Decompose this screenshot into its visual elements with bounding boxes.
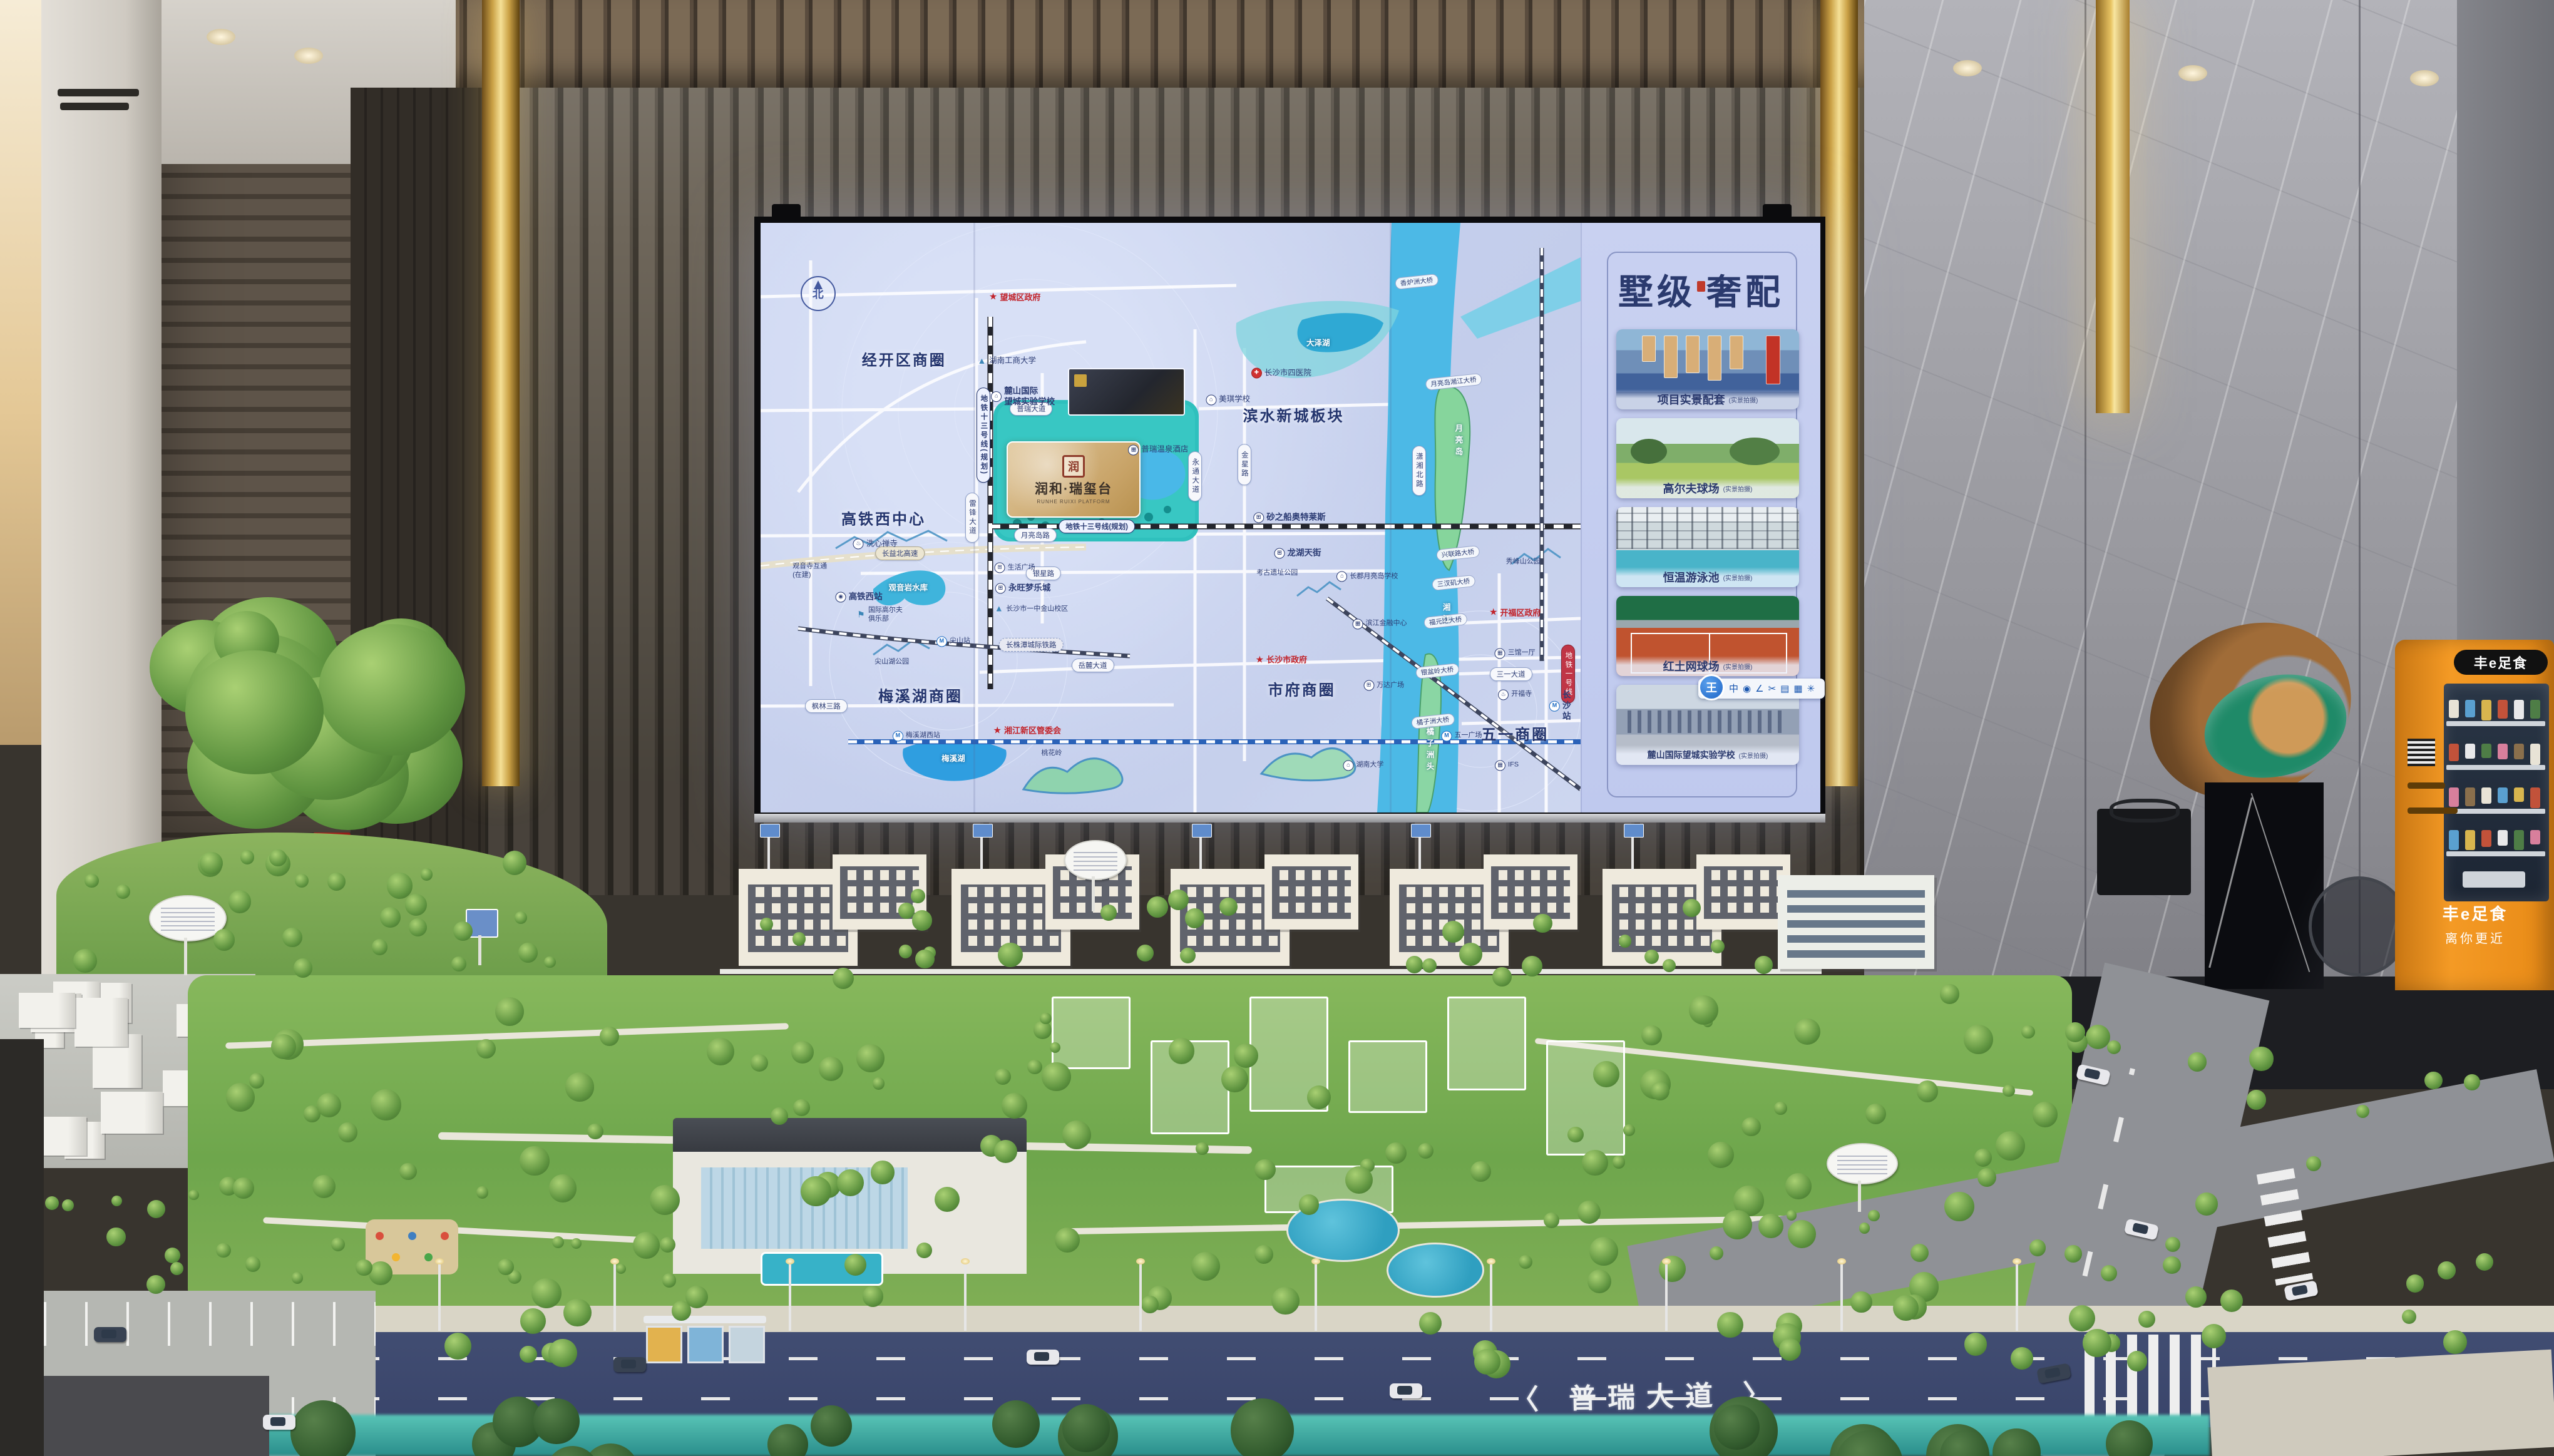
model-tree bbox=[911, 889, 925, 903]
map-poi-label: 观音岩水库 bbox=[889, 583, 928, 593]
lot-sign-post bbox=[1199, 834, 1202, 870]
model-tree bbox=[1442, 921, 1464, 943]
model-tree bbox=[2083, 1329, 2111, 1357]
sign-board bbox=[1642, 336, 1656, 362]
street-lamp bbox=[1665, 1263, 1668, 1331]
model-tree bbox=[294, 958, 313, 978]
model-tree bbox=[2188, 1052, 2207, 1071]
building-icon: ▦ bbox=[1353, 618, 1363, 629]
cart-icon: ⊞ bbox=[1274, 548, 1285, 558]
ceiling-spotlight bbox=[207, 29, 235, 45]
star-icon: ★ bbox=[989, 291, 997, 302]
model-perimeter-wall bbox=[720, 969, 1822, 974]
poi-text: 大泽湖 bbox=[1306, 339, 1330, 349]
gold-light-column bbox=[2096, 0, 2130, 413]
caption-text: 恒温游泳池 bbox=[1663, 569, 1720, 585]
map-road-label: 永通大道 bbox=[1188, 451, 1202, 501]
map-poi-label: 湘江 bbox=[1440, 603, 1450, 627]
poi-text: 梅溪湖 bbox=[941, 754, 965, 764]
model-tree bbox=[111, 1196, 122, 1206]
model-tree bbox=[409, 918, 427, 936]
model-tree bbox=[792, 932, 806, 945]
model-tree bbox=[1271, 1287, 1299, 1315]
amenity-card-golf: 高尔夫球场(实景拍摄) bbox=[1616, 418, 1799, 498]
map-road-label: 月亮岛路 bbox=[1014, 528, 1057, 542]
screen-bottom-bezel bbox=[754, 814, 1825, 823]
map-area-label: 五一商圈 bbox=[1481, 722, 1549, 744]
model-tree bbox=[331, 1238, 345, 1251]
poi-text: 长沙市一中金山校区 bbox=[1006, 605, 1068, 613]
model-tree bbox=[2003, 1085, 2014, 1097]
model-tree bbox=[1865, 1104, 1886, 1124]
model-tree bbox=[1582, 1150, 1608, 1176]
model-tree bbox=[73, 949, 97, 973]
product-item bbox=[2465, 744, 2475, 759]
model-tree bbox=[1714, 1405, 1760, 1450]
model-tree bbox=[327, 873, 346, 891]
model-tree bbox=[549, 1174, 577, 1202]
black-bag bbox=[2097, 809, 2191, 895]
model-plaque-sign bbox=[1827, 1143, 1898, 1184]
lot-number-sign bbox=[1624, 824, 1644, 838]
model-tree bbox=[1651, 1082, 1669, 1100]
model-tree bbox=[863, 1286, 883, 1306]
model-tree bbox=[791, 1041, 814, 1064]
model-tree bbox=[170, 1262, 183, 1275]
sign-board bbox=[1730, 336, 1743, 369]
poi-text: 长沙市四医院 bbox=[1264, 368, 1311, 378]
marble-seam bbox=[2359, 0, 2361, 995]
model-tree bbox=[476, 1039, 496, 1059]
model-tree bbox=[515, 911, 527, 924]
map-road-label: 三一大道 bbox=[1490, 667, 1532, 681]
project-name-en: RUNHE RUIXI PLATFORM bbox=[1037, 499, 1110, 505]
screen-bracket bbox=[772, 204, 801, 220]
model-tree bbox=[1641, 1025, 1662, 1046]
laser-icon[interactable]: ◉ bbox=[1743, 684, 1751, 694]
model-tree bbox=[998, 943, 1022, 967]
model-tree bbox=[1774, 1102, 1787, 1115]
model-tree bbox=[1755, 956, 1773, 974]
vending-shelf bbox=[2446, 721, 2545, 726]
star-icon: ★ bbox=[1489, 607, 1497, 618]
street-lamp bbox=[438, 1263, 441, 1331]
map-landmark-label: ★开福区政府 bbox=[1489, 606, 1541, 618]
caption-text: 高尔夫球场 bbox=[1663, 480, 1720, 496]
cart-icon: ⊞ bbox=[995, 583, 1006, 594]
model-tree bbox=[2202, 1324, 2226, 1348]
model-tree bbox=[1100, 905, 1117, 921]
model-tree bbox=[1788, 1220, 1816, 1248]
map-landmark-label: ★长沙市政府 bbox=[1256, 654, 1307, 665]
left-floor-shadow bbox=[0, 1039, 44, 1456]
model-tree bbox=[2402, 1310, 2416, 1324]
caption-sub: (实景拍摄) bbox=[1723, 484, 1753, 493]
model-tree bbox=[269, 849, 286, 866]
model-tree bbox=[1185, 908, 1205, 928]
model-tree bbox=[1147, 896, 1168, 918]
map-poi-label: 月亮岛 bbox=[1453, 424, 1463, 459]
vending-brand-pill: 丰e足食 bbox=[2454, 650, 2548, 675]
cart-icon: ⊞ bbox=[1363, 680, 1374, 691]
caption-sub: (实景拍摄) bbox=[1723, 662, 1753, 671]
model-tree bbox=[916, 1243, 932, 1258]
red-seal bbox=[1697, 281, 1705, 292]
map-road-label: 金星路 bbox=[1238, 444, 1251, 485]
model-villa bbox=[1484, 854, 1577, 930]
model-tree bbox=[1723, 1210, 1752, 1239]
model-tree bbox=[1033, 1021, 1051, 1038]
model-tree bbox=[2306, 1156, 2321, 1171]
map-poi-label: 秀峰山公园 bbox=[1506, 558, 1541, 567]
model-tree bbox=[1619, 935, 1631, 947]
sign-post bbox=[184, 938, 187, 975]
vending-slogan: 离你更近 bbox=[2401, 928, 2549, 946]
model-pergola bbox=[1546, 1040, 1625, 1156]
product-item bbox=[2498, 744, 2508, 759]
model-tree bbox=[793, 1099, 810, 1116]
project-parcel: 润 润和·瑞玺台 RUNHE RUIXI PLATFORM bbox=[1007, 441, 1141, 518]
map-poi-label: ⌂美琪学校 bbox=[1206, 394, 1250, 405]
map-poi-label: ▦滨江金融中心 bbox=[1353, 618, 1407, 629]
building-icon: ▦ bbox=[1495, 648, 1505, 659]
lot-sign-post bbox=[1631, 834, 1634, 870]
model-tree bbox=[1191, 1252, 1220, 1281]
map-poi-label: 尖山湖公园 bbox=[874, 658, 909, 667]
model-tree bbox=[1717, 1312, 1743, 1338]
map-road-label: 潇湘北路 bbox=[1412, 446, 1426, 496]
model-plaque-sign bbox=[1064, 840, 1127, 880]
map-area-label: 高铁西中心 bbox=[841, 507, 926, 529]
poi-text: IFS bbox=[1508, 761, 1519, 770]
metro-icon: M bbox=[1442, 731, 1452, 741]
ceiling-spotlight bbox=[1953, 60, 1982, 76]
ceiling-spotlight bbox=[2178, 65, 2207, 81]
gold-column-right bbox=[1820, 0, 1858, 786]
poi-text: 滨江金融中心 bbox=[1366, 620, 1407, 628]
hospital-icon: ✚ bbox=[1251, 368, 1262, 379]
model-tree bbox=[1522, 956, 1542, 977]
model-tree bbox=[2247, 1090, 2266, 1109]
playground-equipment bbox=[424, 1253, 433, 1261]
model-pergola bbox=[1447, 997, 1526, 1090]
map-road-label: 岳麓大道 bbox=[1072, 659, 1114, 672]
map-poi-label: M五一广场 bbox=[1442, 731, 1482, 741]
model-tree bbox=[801, 1176, 831, 1206]
gold-column-left bbox=[482, 0, 520, 786]
model-tree bbox=[1027, 1060, 1042, 1074]
sign-board bbox=[1664, 336, 1678, 378]
ceiling-spotlight bbox=[2410, 70, 2439, 86]
pen-icon[interactable]: ∠ bbox=[1755, 684, 1763, 694]
ceiling-spotlight bbox=[294, 48, 323, 64]
caption-text: 项目实景配套 bbox=[1658, 391, 1725, 408]
map-poi-label: 大泽湖 bbox=[1306, 339, 1330, 349]
model-tree bbox=[1254, 1159, 1275, 1180]
model-tree bbox=[2163, 1256, 2180, 1274]
black-marble-pedestal bbox=[2205, 782, 2324, 989]
mountain-icon: ▲ bbox=[977, 357, 987, 366]
map-poi-label: ⌂长郡月亮岛学校 bbox=[1336, 572, 1398, 582]
model-tree bbox=[1964, 1025, 1993, 1054]
product-item bbox=[2449, 787, 2459, 807]
scissors-icon[interactable]: ✂ bbox=[1768, 684, 1777, 694]
model-tree bbox=[662, 1273, 676, 1287]
sales-gallery-photo: 丰e足食 丰e足食 离你更近 bbox=[0, 0, 2554, 1456]
model-tree bbox=[2249, 1047, 2273, 1070]
model-tree bbox=[1474, 1349, 1500, 1375]
model-tree bbox=[399, 1163, 417, 1181]
product-item bbox=[2481, 830, 2491, 847]
map-landmark-label: ★湘江新区管委会 bbox=[993, 724, 1061, 736]
model-tree bbox=[873, 1077, 885, 1089]
school-icon: ⌂ bbox=[1336, 572, 1347, 582]
model-tree bbox=[495, 997, 524, 1026]
model-office-building bbox=[1778, 875, 1934, 969]
caption-sub: (实景拍摄) bbox=[1723, 573, 1753, 582]
star-icon: ★ bbox=[1256, 654, 1264, 665]
model-tree bbox=[1587, 1269, 1611, 1293]
toolbar-logo[interactable]: 王 bbox=[1698, 674, 1725, 700]
street-lamp bbox=[1490, 1263, 1492, 1331]
model-tree bbox=[228, 890, 252, 913]
product-item bbox=[2498, 700, 2508, 719]
model-tree bbox=[2464, 1074, 2480, 1090]
model-tree bbox=[531, 1278, 562, 1308]
vending-shelf bbox=[2446, 851, 2545, 856]
model-tree bbox=[1787, 1210, 1797, 1220]
map-area-label: 市府商圈 bbox=[1268, 678, 1336, 700]
amenity-card-tennis: 红土网球场(实景拍摄) bbox=[1616, 596, 1799, 676]
model-tree bbox=[2011, 1347, 2033, 1370]
location-map: 润 润和·瑞玺台 RUNHE RUIXI PLATFORM 北 经开区商圈高铁西… bbox=[761, 223, 1581, 813]
model-tree bbox=[1418, 1143, 1433, 1159]
poi-text: 三馆一厅 bbox=[1508, 649, 1536, 658]
model-tree bbox=[444, 1333, 471, 1360]
model-tree bbox=[292, 1272, 303, 1283]
map-poi-label: 考古遗址公园 bbox=[1256, 570, 1298, 578]
marble-seam bbox=[2085, 0, 2086, 995]
model-tree bbox=[1042, 1062, 1070, 1091]
model-tree bbox=[2438, 1261, 2456, 1279]
map-road-label: 地铁十三号线(规划) bbox=[1059, 520, 1135, 533]
map-poi-label: 观音寺互通 (在建) bbox=[792, 562, 827, 580]
model-tree bbox=[1221, 1066, 1248, 1092]
playground-equipment bbox=[376, 1232, 384, 1240]
product-item bbox=[2530, 744, 2540, 765]
model-tree bbox=[1711, 940, 1725, 953]
model-tree bbox=[844, 1254, 866, 1276]
product-item bbox=[2530, 700, 2540, 719]
map-poi-label: ⊞万达广场 bbox=[1363, 680, 1404, 691]
poi-text: 开福寺 bbox=[1511, 690, 1532, 699]
poi-text: 洗心禅寺 bbox=[866, 540, 898, 550]
model-tree bbox=[1169, 1038, 1194, 1064]
vending-pickup-slot bbox=[2408, 782, 2445, 789]
sign-board bbox=[1766, 336, 1780, 384]
map-poi-label: ◉高铁西站 bbox=[836, 592, 883, 603]
model-tree bbox=[871, 1161, 894, 1184]
school-icon: ⌂ bbox=[991, 391, 1002, 402]
pointer-icon[interactable]: 中 bbox=[1729, 684, 1738, 694]
model-pond bbox=[1387, 1243, 1484, 1298]
product-item bbox=[2465, 787, 2475, 806]
vending-qr-code bbox=[2408, 739, 2435, 766]
poi-text: 长沙站 bbox=[1562, 690, 1571, 722]
map-poi-label: ⊞砂之船奥特莱斯 bbox=[1253, 513, 1326, 523]
model-tree bbox=[751, 1054, 768, 1072]
model-villa bbox=[1264, 854, 1358, 930]
model-tree bbox=[226, 1083, 255, 1112]
model-tree bbox=[548, 1339, 577, 1367]
model-tree bbox=[282, 928, 302, 947]
model-tree bbox=[1345, 1166, 1373, 1194]
map-poi-label: 橘子洲头 bbox=[1424, 727, 1434, 774]
poi-text: 龙湖天街 bbox=[1288, 548, 1321, 558]
star-icon: ★ bbox=[993, 724, 1002, 736]
model-tree bbox=[1644, 950, 1659, 964]
card-caption: 项目实景配套(实景拍摄) bbox=[1616, 389, 1799, 409]
map-poi-label: ▦IFS bbox=[1495, 760, 1519, 771]
model-tree bbox=[498, 1259, 513, 1274]
building-icon: ▦ bbox=[1128, 444, 1139, 455]
model-tree bbox=[899, 945, 913, 958]
model-tree bbox=[2138, 1311, 2155, 1328]
model-tree bbox=[1141, 1296, 1158, 1313]
model-tree bbox=[451, 956, 466, 972]
poi-text: 长郡月亮岛学校 bbox=[1350, 572, 1398, 581]
model-tree bbox=[1758, 1214, 1783, 1238]
model-bus-stop bbox=[644, 1316, 766, 1373]
lot-sign-post bbox=[1418, 834, 1421, 870]
sign-post bbox=[1858, 1181, 1861, 1212]
model-tree bbox=[85, 874, 98, 888]
map-poi-label: ♨开福寺 bbox=[1498, 689, 1532, 700]
map-road-label: 雷锋大道 bbox=[965, 493, 979, 543]
model-tree bbox=[106, 1228, 125, 1246]
theme-icon[interactable]: ▦ bbox=[1793, 684, 1802, 694]
street-lamp bbox=[613, 1263, 616, 1331]
model-tree bbox=[1741, 1117, 1760, 1136]
model-tree bbox=[1234, 1043, 1258, 1068]
map-poi-label: 桃花岭 bbox=[1042, 749, 1062, 758]
product-item bbox=[2514, 787, 2524, 802]
model-tree bbox=[1974, 1149, 1992, 1166]
model-tree bbox=[1593, 1061, 1619, 1087]
model-pergola bbox=[1348, 1040, 1427, 1113]
whiteboard-icon[interactable]: ▤ bbox=[1780, 684, 1789, 694]
cart-icon: ⊞ bbox=[995, 563, 1005, 573]
product-item bbox=[2514, 744, 2524, 759]
model-tree bbox=[1779, 1338, 1801, 1360]
model-tree bbox=[421, 868, 433, 881]
model-car bbox=[94, 1327, 126, 1342]
villa-windows bbox=[1272, 866, 1351, 919]
context-building bbox=[74, 998, 128, 1047]
settings-icon[interactable]: ✳ bbox=[1807, 684, 1815, 694]
poi-text: 考古遗址公园 bbox=[1256, 570, 1298, 578]
project-logo: 润 bbox=[1062, 455, 1085, 478]
map-poi-label: M尖山站 bbox=[936, 636, 970, 647]
map-poi-label: ▲长沙市一中金山校区 bbox=[994, 605, 1068, 614]
model-tree bbox=[1002, 1093, 1027, 1119]
product-item bbox=[2465, 700, 2475, 717]
model-tree bbox=[995, 1069, 1011, 1085]
tree-blob bbox=[1730, 438, 1780, 465]
model-tree bbox=[356, 1259, 372, 1276]
model-tree bbox=[1419, 1312, 1442, 1335]
side-light-strip bbox=[0, 0, 41, 745]
lot-number-sign bbox=[973, 824, 993, 838]
model-tree bbox=[992, 1400, 1040, 1448]
map-poi-label: ▦三馆一厅 bbox=[1495, 648, 1536, 659]
model-car bbox=[263, 1415, 295, 1430]
poi-text: 湖南大学 bbox=[1356, 761, 1383, 770]
model-tree bbox=[1964, 1333, 1987, 1355]
poi-text: 湘江 bbox=[1440, 603, 1450, 627]
product-item bbox=[2530, 787, 2540, 808]
model-tree bbox=[2165, 1237, 2180, 1252]
metro-icon: M bbox=[936, 636, 947, 647]
model-tree bbox=[216, 1243, 230, 1258]
model-tree bbox=[1940, 984, 1960, 1004]
model-tree bbox=[147, 1200, 165, 1218]
model-tree bbox=[1050, 1042, 1060, 1053]
mountain-icon: ▲ bbox=[994, 605, 1003, 614]
model-car bbox=[2284, 1280, 2319, 1301]
card-caption: 恒温游泳池(实景拍摄) bbox=[1616, 567, 1799, 587]
model-tree bbox=[1231, 1398, 1294, 1456]
model-tree bbox=[2127, 1351, 2147, 1371]
landmark-text: 望城区政府 bbox=[1000, 290, 1040, 302]
sign-post bbox=[478, 935, 481, 965]
map-poi-label: ⊞龙湖天街 bbox=[1274, 548, 1321, 558]
building-windows bbox=[1628, 710, 1788, 733]
model-tree bbox=[1406, 956, 1423, 973]
poi-text: 普瑞温泉酒店 bbox=[1141, 445, 1188, 455]
model-tree bbox=[1577, 1201, 1601, 1224]
model-tree bbox=[1299, 1194, 1319, 1214]
model-tree bbox=[2356, 1105, 2369, 1118]
model-pergola bbox=[1052, 997, 1131, 1069]
lot-sign-post bbox=[980, 834, 983, 870]
videowall-seam bbox=[1390, 223, 1392, 813]
model-tree bbox=[915, 950, 934, 968]
model-car bbox=[1390, 1383, 1422, 1398]
model-tree bbox=[200, 852, 222, 874]
street-lamp bbox=[1315, 1263, 1317, 1331]
caption-sub: (实景拍摄) bbox=[1739, 751, 1768, 760]
model-tree bbox=[233, 1177, 254, 1199]
glass-side-table bbox=[2309, 876, 2409, 977]
wood-slat-ceiling bbox=[438, 0, 1897, 95]
model-tree bbox=[1055, 1228, 1080, 1253]
model-tree bbox=[912, 910, 932, 930]
amenity-card-aerial: 项目实景配套(实景拍摄) bbox=[1616, 329, 1799, 409]
lot-number-sign bbox=[1411, 824, 1431, 838]
villa-windows bbox=[1491, 866, 1570, 919]
metro-icon: M bbox=[1549, 701, 1560, 712]
plant-foliage bbox=[319, 624, 465, 756]
model-tree bbox=[616, 1264, 626, 1274]
map-area-label: 梅溪湖商圈 bbox=[878, 684, 963, 705]
model-tree bbox=[1785, 1173, 1812, 1199]
model-tree bbox=[2069, 1305, 2095, 1331]
map-area-label: 滨水新城板块 bbox=[1243, 404, 1345, 426]
model-tree bbox=[544, 956, 556, 968]
screen-bracket bbox=[1763, 204, 1792, 220]
product-item bbox=[2449, 744, 2459, 761]
